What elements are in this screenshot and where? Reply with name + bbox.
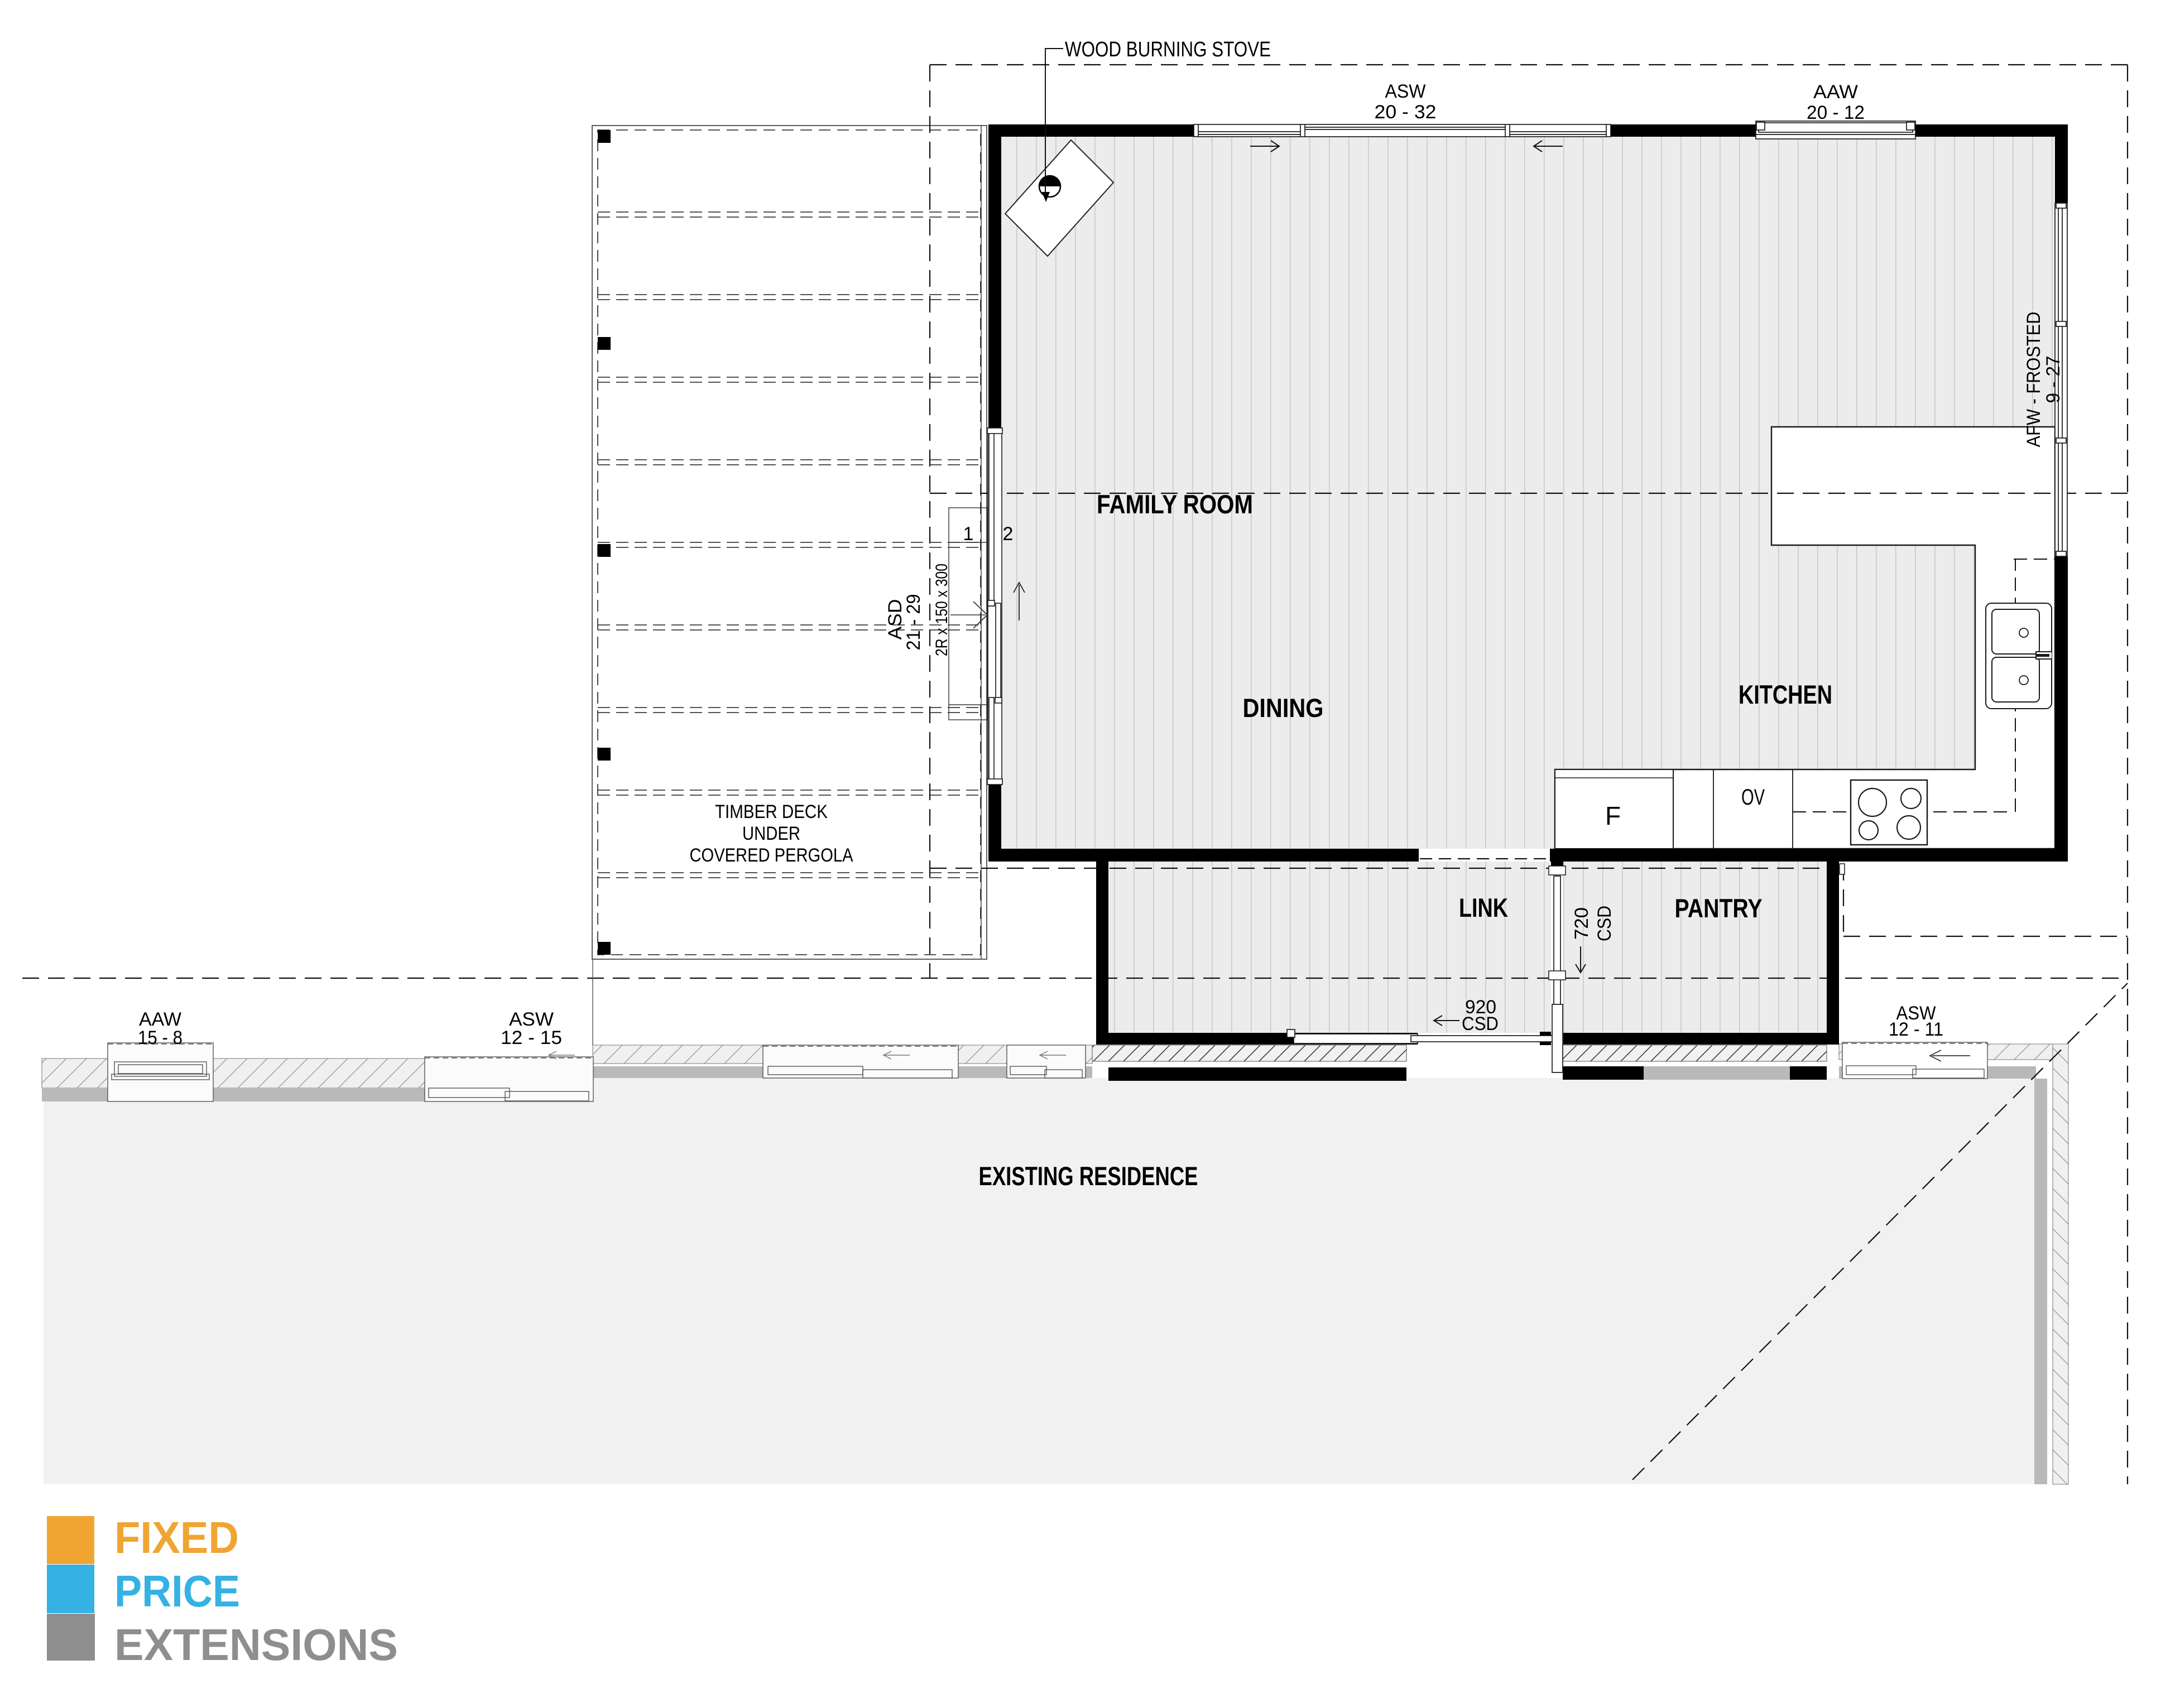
svg-text:PANTRY: PANTRY bbox=[1675, 893, 1763, 923]
svg-text:CSD: CSD bbox=[1594, 906, 1615, 941]
svg-text:PRICE: PRICE bbox=[114, 1566, 240, 1616]
svg-text:EXISTING RESIDENCE: EXISTING RESIDENCE bbox=[979, 1161, 1198, 1191]
svg-text:21 - 29: 21 - 29 bbox=[903, 594, 924, 651]
svg-text:9 - 27: 9 - 27 bbox=[2043, 356, 2064, 403]
svg-text:UNDER: UNDER bbox=[742, 823, 800, 844]
svg-text:20 - 12: 20 - 12 bbox=[1807, 102, 1865, 123]
svg-text:2R x 150 x 300: 2R x 150 x 300 bbox=[933, 564, 951, 656]
svg-text:720: 720 bbox=[1571, 907, 1592, 940]
svg-text:F: F bbox=[1605, 801, 1621, 830]
svg-text:15 - 8: 15 - 8 bbox=[138, 1027, 183, 1048]
svg-text:CSD: CSD bbox=[1462, 1013, 1499, 1035]
svg-text:1: 1 bbox=[963, 523, 974, 545]
svg-text:12 - 11: 12 - 11 bbox=[1889, 1019, 1943, 1040]
svg-text:EXTENSIONS: EXTENSIONS bbox=[114, 1620, 398, 1669]
svg-text:AAW: AAW bbox=[1813, 81, 1858, 103]
svg-text:ASW: ASW bbox=[1385, 81, 1426, 102]
svg-text:OV: OV bbox=[1741, 785, 1765, 810]
svg-text:COVERED PERGOLA: COVERED PERGOLA bbox=[690, 845, 853, 866]
svg-text:TIMBER DECK: TIMBER DECK bbox=[715, 801, 828, 822]
svg-text:LINK: LINK bbox=[1459, 893, 1508, 922]
svg-text:20 - 32: 20 - 32 bbox=[1375, 102, 1437, 123]
svg-text:12 - 15: 12 - 15 bbox=[501, 1027, 562, 1048]
svg-text:AFW - FROSTED: AFW - FROSTED bbox=[2023, 312, 2044, 448]
svg-text:2: 2 bbox=[1003, 523, 1014, 545]
svg-text:KITCHEN: KITCHEN bbox=[1739, 680, 1832, 709]
svg-text:DINING: DINING bbox=[1243, 693, 1324, 723]
svg-text:FAMILY ROOM: FAMILY ROOM bbox=[1097, 489, 1253, 519]
svg-text:FIXED: FIXED bbox=[114, 1513, 239, 1562]
svg-text:WOOD BURNING STOVE: WOOD BURNING STOVE bbox=[1065, 38, 1271, 61]
